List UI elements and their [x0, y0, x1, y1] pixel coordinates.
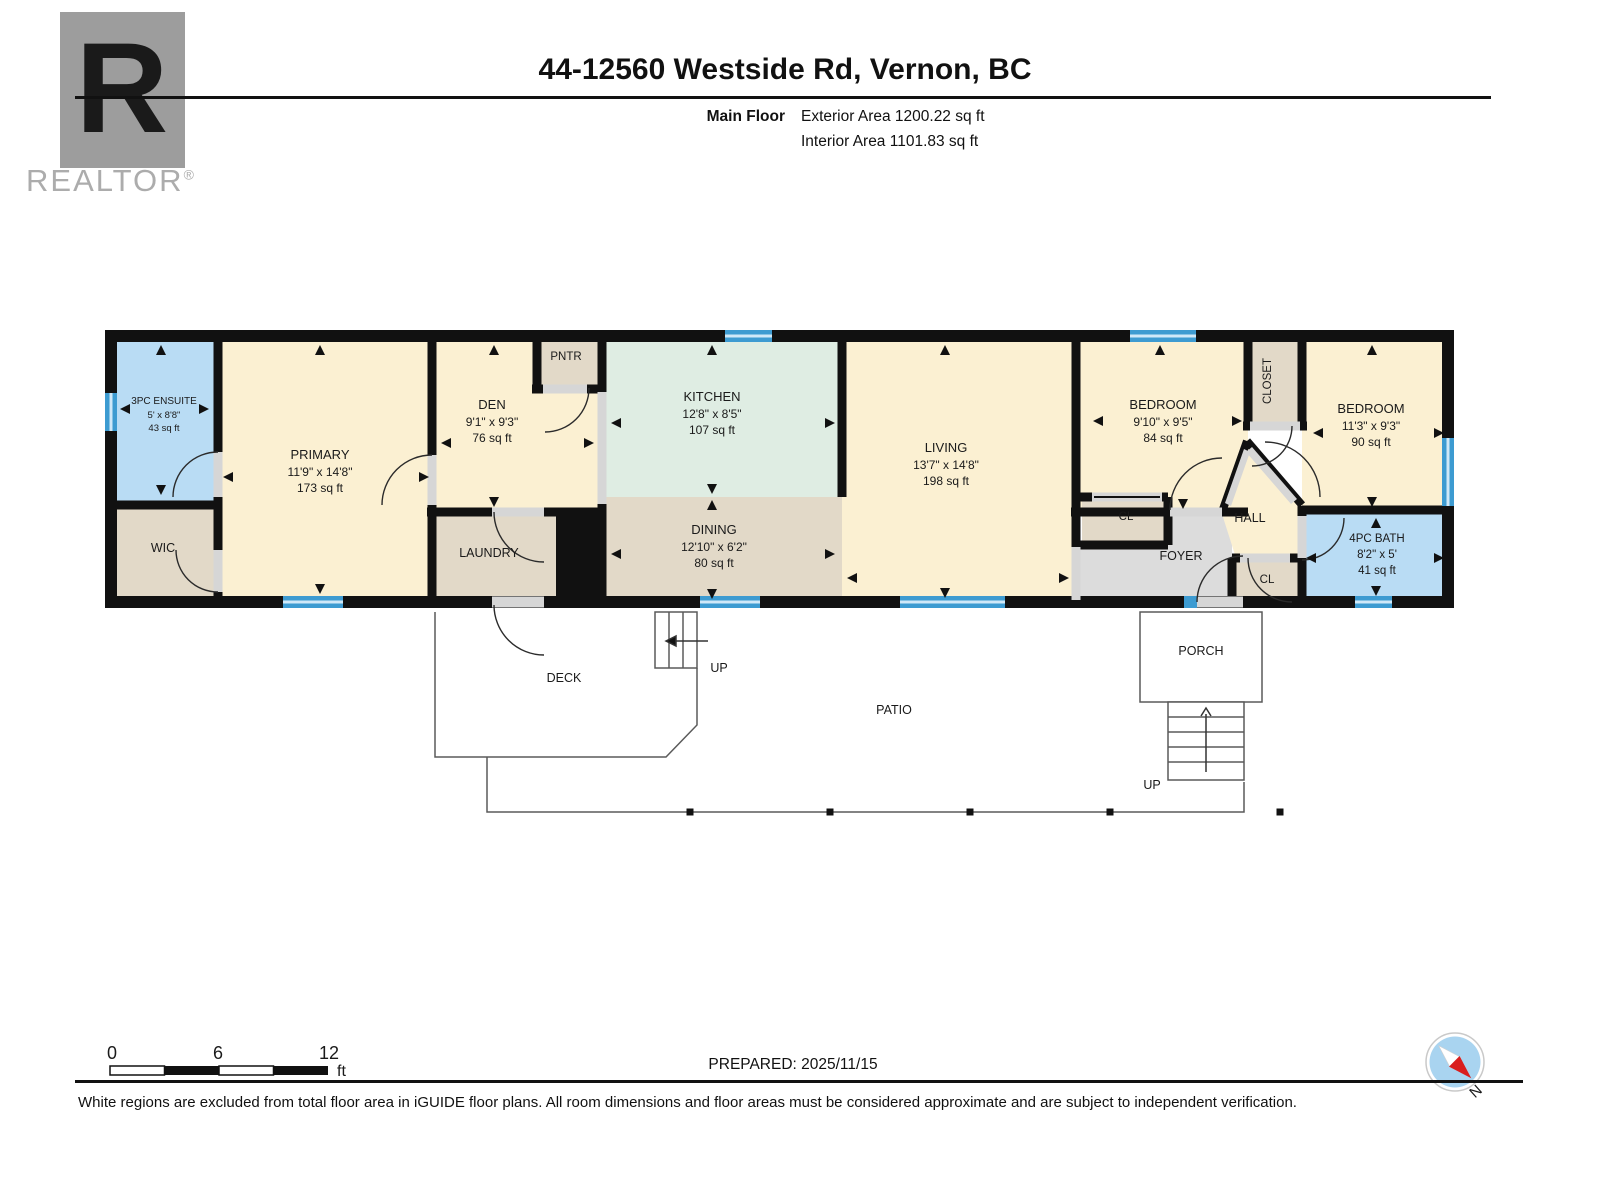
patio-outline	[487, 757, 1244, 812]
window	[725, 330, 772, 342]
realtor-wordmark: REALTOR®	[26, 163, 196, 199]
label-patio: PATIO	[876, 703, 912, 717]
label-kitchen-dims: 12'8" x 8'5"	[682, 407, 741, 421]
deck-stairs	[655, 612, 708, 668]
label-porch: PORCH	[1178, 644, 1223, 658]
label-den-area: 76 sq ft	[472, 431, 512, 445]
label-primary-name: PRIMARY	[291, 447, 350, 462]
label-dining-dims: 12'10" x 6'2"	[681, 540, 747, 554]
label-bedroom2-area: 90 sq ft	[1351, 435, 1391, 449]
label-ensuite-area: 43 sq ft	[148, 423, 180, 434]
label-bath-area: 41 sq ft	[1358, 565, 1397, 577]
label-bedroom1-area: 84 sq ft	[1143, 431, 1183, 445]
label-dining-area: 80 sq ft	[694, 556, 734, 570]
label-laundry: LAUNDRY	[459, 546, 519, 560]
floor-plan: 3PC ENSUITE 5' x 8'8" 43 sq ft WIC PRIMA…	[95, 318, 1475, 842]
label-den-name: DEN	[478, 397, 505, 412]
disclaimer-text: White regions are excluded from total fl…	[78, 1094, 1538, 1111]
window	[1355, 596, 1392, 608]
window	[1442, 438, 1454, 506]
label-porch-up: UP	[1143, 778, 1160, 792]
wall-block	[556, 508, 602, 602]
porch-stairs	[1168, 702, 1244, 780]
label-deck: DECK	[547, 671, 582, 685]
label-ensuite-dims: 5' x 8'8"	[148, 410, 181, 421]
label-bath-name: 4PC BATH	[1349, 533, 1404, 545]
window	[1184, 596, 1197, 608]
page-title: 44-12560 Westside Rd, Vernon, BC	[0, 53, 1570, 87]
label-ensuite-name: 3PC ENSUITE	[131, 396, 197, 407]
prepared-date: PREPARED: 2025/11/15	[0, 1056, 1586, 1074]
label-primary-area: 173 sq ft	[297, 481, 344, 495]
label-cl-foyer: CL	[1260, 574, 1275, 586]
label-bedroom1-dims: 9'10" x 9'5"	[1133, 415, 1192, 429]
footer-rule	[75, 1080, 1523, 1083]
label-living-name: LIVING	[925, 440, 968, 455]
registered-mark: ®	[184, 167, 196, 183]
window	[105, 393, 117, 431]
label-dining-name: DINING	[691, 522, 737, 537]
exterior-area-text: Exterior Area 1200.22 sq ft	[801, 108, 985, 126]
label-bedroom2-name: BEDROOM	[1337, 401, 1404, 416]
label-bedroom1-name: BEDROOM	[1129, 397, 1196, 412]
room-closet	[1248, 336, 1302, 426]
label-pntr: PNTR	[550, 351, 581, 363]
label-hall: HALL	[1234, 511, 1265, 525]
window	[900, 596, 1005, 608]
label-cl-bedroom1: CL	[1119, 511, 1134, 523]
realtor-logo: R	[60, 12, 185, 168]
label-primary-dims: 11'9" x 14'8"	[288, 465, 353, 479]
label-den-dims: 9'1" x 9'3"	[466, 415, 518, 429]
label-kitchen-area: 107 sq ft	[689, 423, 736, 437]
label-bath-dims: 8'2" x 5'	[1357, 549, 1397, 561]
window	[283, 596, 343, 608]
label-living-area: 198 sq ft	[923, 474, 970, 488]
label-closet: CLOSET	[1262, 358, 1274, 404]
label-foyer: FOYER	[1159, 549, 1202, 563]
label-wic: WIC	[151, 541, 175, 555]
floor-label: Main Floor	[560, 108, 785, 126]
label-deck-up: UP	[710, 661, 727, 675]
label-living-dims: 13'7" x 14'8"	[913, 458, 979, 472]
title-rule	[75, 96, 1491, 99]
label-kitchen-name: KITCHEN	[683, 389, 740, 404]
window	[700, 596, 760, 608]
realtor-logo-letter: R	[76, 17, 168, 160]
label-bedroom2-dims: 11'3" x 9'3"	[1342, 419, 1400, 433]
interior-area-text: Interior Area 1101.83 sq ft	[801, 133, 978, 151]
window	[1130, 330, 1196, 342]
